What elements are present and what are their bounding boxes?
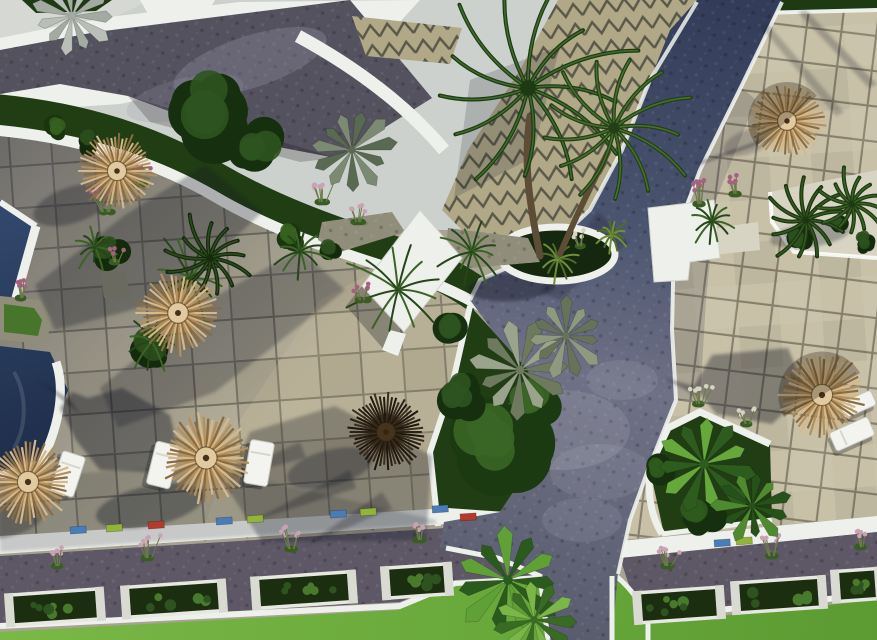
accent-tile xyxy=(148,521,164,529)
render-canvas xyxy=(0,0,877,640)
white-slab xyxy=(140,0,215,14)
accent-tile xyxy=(432,505,448,513)
accent-tile xyxy=(460,513,476,521)
accent-tile xyxy=(360,508,376,516)
planter-box xyxy=(730,575,828,616)
planter-box xyxy=(830,566,877,604)
accent-tile xyxy=(714,539,730,547)
accent-tile xyxy=(106,524,122,532)
accent-tile xyxy=(330,510,346,518)
planter-box xyxy=(380,562,454,601)
accent-tile xyxy=(247,515,263,523)
accent-tile xyxy=(216,517,232,525)
accent-tile xyxy=(70,526,86,534)
aerial-resort-render xyxy=(0,0,877,640)
planter-box xyxy=(632,585,726,625)
